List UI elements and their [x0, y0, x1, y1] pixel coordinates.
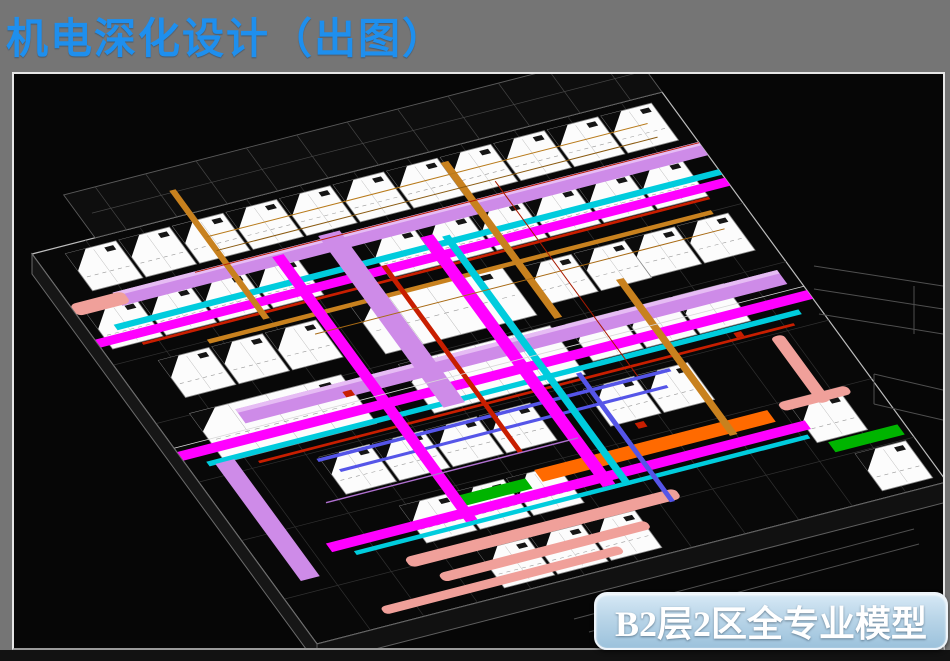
- slide-title: 机电深化设计（出图）: [6, 0, 446, 70]
- caption-text: B2层2区全专业模型: [615, 595, 927, 647]
- bim-model-rendering: [14, 74, 943, 648]
- caption-badge: B2层2区全专业模型: [594, 592, 948, 650]
- bottom-strip: [0, 650, 950, 661]
- presentation-slide: { "slide": { "title": "机电深化设计（出图）", "cap…: [0, 0, 950, 661]
- model-figure: [12, 72, 945, 650]
